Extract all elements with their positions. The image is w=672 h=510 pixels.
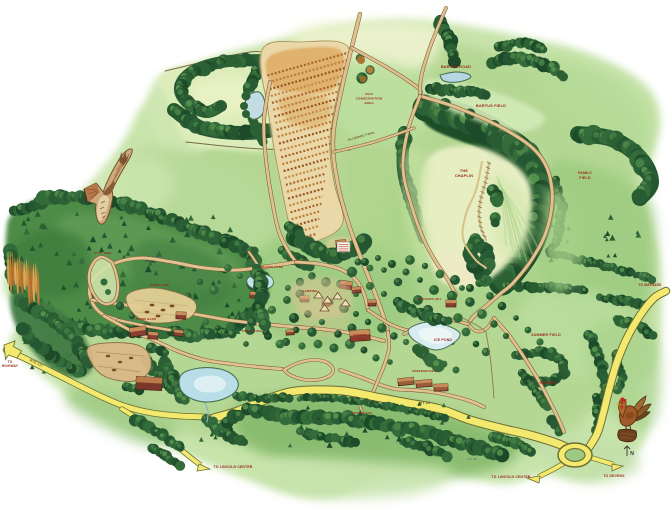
svg-text:GREENHOUSES: GREENHOUSES: [412, 369, 436, 373]
svg-text:HARROW: HARROW: [540, 381, 557, 385]
svg-text:CENTER: CENTER: [353, 337, 367, 341]
svg-text:PONY RING: PONY RING: [94, 251, 111, 255]
svg-text:FIELD: FIELD: [579, 176, 591, 180]
svg-text:N: N: [630, 451, 634, 457]
svg-text:SUMMER FIELD: SUMMER FIELD: [531, 333, 561, 337]
svg-text:HIGHWAY: HIGHWAY: [2, 364, 19, 368]
svg-text:CHAPLIN: CHAPLIN: [455, 174, 473, 178]
svg-text:RT 2A: RT 2A: [420, 401, 431, 405]
svg-text:ICE POND: ICE POND: [434, 338, 452, 342]
svg-text:TO LINCOLN CENTER: TO LINCOLN CENTER: [492, 475, 531, 479]
svg-text:STONE BARN: STONE BARN: [136, 317, 156, 321]
svg-text:AREA: AREA: [364, 101, 374, 105]
svg-text:TO MAYNARD: TO MAYNARD: [638, 283, 662, 287]
svg-text:VC 08: VC 08: [467, 457, 476, 461]
svg-text:TO LINCOLN CENTER: TO LINCOLN CENTER: [214, 465, 253, 469]
svg-text:CONSERVATION: CONSERVATION: [356, 97, 383, 101]
svg-text:BARTUS FIELD: BARTUS FIELD: [476, 104, 506, 108]
svg-text:FAMILY: FAMILY: [578, 171, 592, 175]
svg-text:THE: THE: [460, 169, 468, 173]
svg-text:ORCHARD HILL: ORCHARD HILL: [418, 297, 442, 301]
svg-text:BARTUS ROAD: BARTUS ROAD: [441, 65, 471, 69]
svg-text:BOAT HOUSE: BOAT HOUSE: [352, 411, 372, 415]
svg-text:FARM YARD: FARM YARD: [151, 283, 169, 287]
svg-text:PICNIC AREA: PICNIC AREA: [242, 329, 262, 333]
svg-text:BEAVER POND: BEAVER POND: [261, 265, 284, 269]
svg-text:2019: 2019: [365, 92, 373, 96]
svg-text:TO DEVENS: TO DEVENS: [603, 474, 625, 478]
svg-text:CAMPING: CAMPING: [302, 289, 318, 293]
